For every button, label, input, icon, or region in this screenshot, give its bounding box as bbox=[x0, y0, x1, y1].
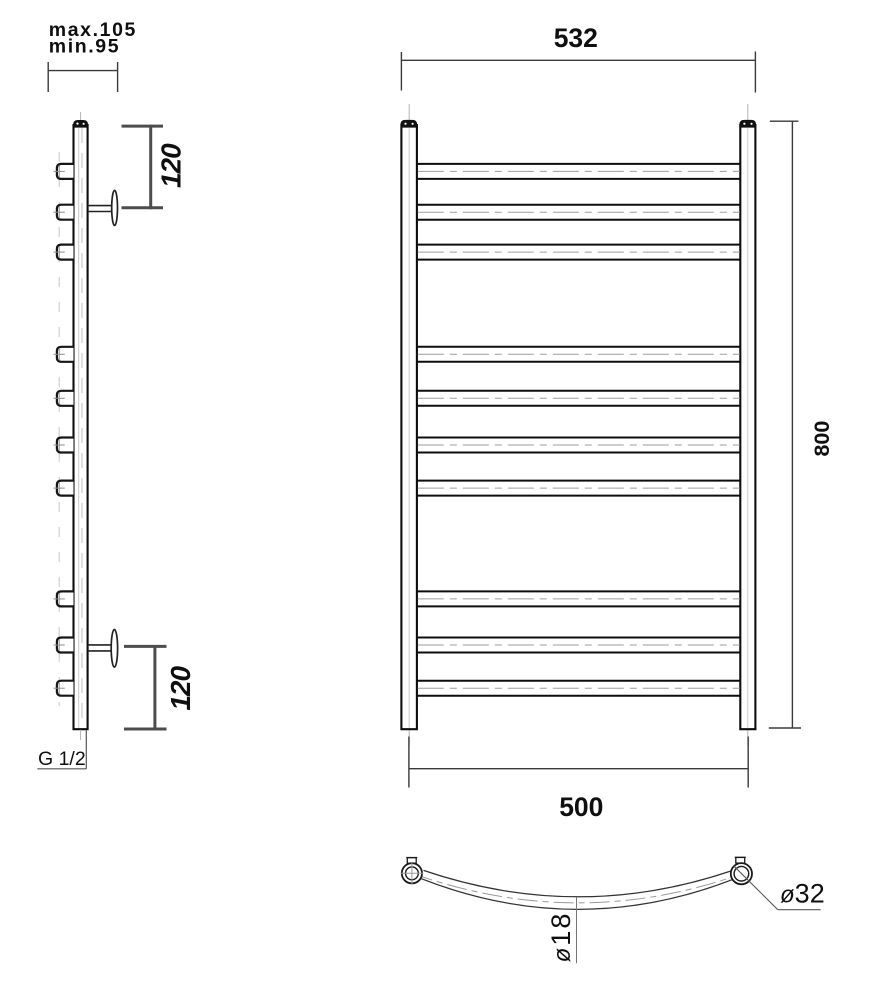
svg-text:120: 120 bbox=[165, 666, 196, 711]
svg-text:min.95: min.95 bbox=[49, 36, 120, 58]
svg-text:G 1/2: G 1/2 bbox=[38, 748, 86, 770]
svg-text:532: 532 bbox=[554, 23, 598, 53]
svg-text:ø32: ø32 bbox=[780, 878, 825, 908]
svg-text:800: 800 bbox=[810, 421, 834, 457]
svg-text:ø18: ø18 bbox=[546, 912, 576, 963]
svg-text:500: 500 bbox=[559, 792, 603, 822]
svg-text:120: 120 bbox=[155, 143, 186, 188]
